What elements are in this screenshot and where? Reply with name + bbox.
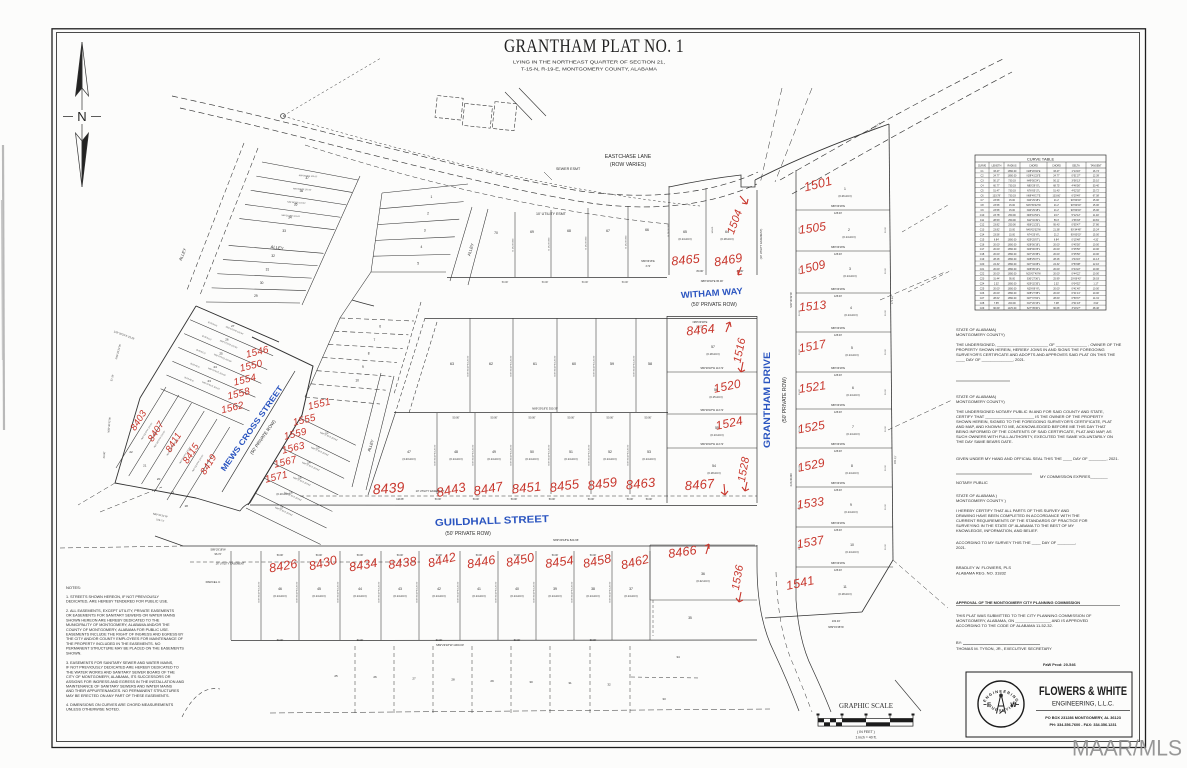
svg-text:UNLESS OTHERWISE NOTED.: UNLESS OTHERWISE NOTED. [66, 708, 120, 712]
svg-text:21.2': 21.2' [1054, 204, 1060, 207]
svg-text:50.00': 50.00' [885, 543, 887, 549]
svg-text:23: 23 [208, 379, 212, 383]
svg-text:50.00': 50.00' [549, 498, 556, 501]
svg-text:MUNICIPALITY OF MONTGOMERY, AL: MUNICIPALITY OF MONTGOMERY, ALABAMA AND/… [66, 623, 170, 627]
svg-text:RADIUS: RADIUS [1007, 165, 1016, 168]
svg-text:1650.00: 1650.00 [1008, 238, 1017, 241]
svg-text:N28°20'04"E: N28°20'04"E [1027, 170, 1041, 173]
svg-text:250.00: 250.00 [1008, 214, 1016, 217]
svg-text:N00°30'42"W: N00°30'42"W [789, 292, 793, 308]
svg-text:50.00': 50.00' [885, 267, 887, 273]
svg-text:30: 30 [529, 680, 533, 684]
svg-text:24.77': 24.77' [993, 175, 1000, 178]
svg-text:0°04'52": 0°04'52" [1071, 282, 1080, 285]
svg-text:22: 22 [129, 450, 133, 454]
svg-text:7.65': 7.65' [994, 302, 1000, 305]
svg-text:N44°29'18"L: N44°29'18"L [1027, 199, 1041, 202]
svg-text:47: 47 [407, 450, 411, 454]
svg-text:(0.14 AC±): (0.14 AC±) [525, 457, 538, 461]
svg-text:N89°29'18"E: N89°29'18"E [831, 327, 846, 330]
svg-text:59: 59 [610, 362, 614, 366]
svg-text:23.78': 23.78' [993, 214, 1000, 217]
svg-text:21.2': 21.2' [1054, 209, 1060, 212]
svg-text:10.00': 10.00' [1093, 253, 1100, 256]
svg-text:N28°25'27"L: N28°25'27"L [1027, 258, 1041, 261]
svg-text:39: 39 [553, 587, 557, 591]
svg-text:31.44': 31.44' [993, 278, 1000, 281]
svg-text:C16: C16 [980, 243, 985, 246]
svg-text:N00°30'42"W 120.00': N00°30'42"W 120.00' [594, 355, 596, 376]
svg-text:10.00': 10.00' [1093, 268, 1100, 271]
svg-text:56.3': 56.3' [1054, 219, 1060, 222]
svg-text:(0.26 AC±): (0.26 AC±) [838, 194, 851, 198]
svg-text:26: 26 [373, 675, 377, 679]
svg-text:50.00': 50.00' [645, 416, 652, 420]
svg-text:C19: C19 [980, 258, 985, 261]
svg-text:3.94': 3.94' [1093, 302, 1099, 305]
svg-text:33.47': 33.47' [993, 170, 1000, 173]
svg-text:N80°29'-5"L: N80°29'-5"L [1027, 185, 1041, 188]
svg-text:69: 69 [530, 230, 534, 234]
svg-text:16.74': 16.74' [1093, 170, 1100, 173]
svg-text:70: 70 [494, 231, 498, 235]
svg-text:N28°41'23"E: N28°41'23"E [1027, 175, 1041, 178]
svg-text:C15: C15 [980, 238, 985, 241]
svg-text:(0.14 AC±): (0.14 AC±) [603, 457, 616, 461]
svg-text:N68°49'17"E: N68°49'17"E [1027, 194, 1041, 197]
svg-text:1.17': 1.17' [1093, 282, 1099, 285]
svg-text:DELTA: DELTA [1072, 165, 1080, 168]
svg-text:S89°29'18"W 1300.00': S89°29'18"W 1300.00' [436, 643, 464, 647]
svg-text:( IN FEET ): ( IN FEET ) [857, 730, 875, 734]
svg-text:15.00: 15.00 [1009, 204, 1016, 207]
svg-text:3.72': 3.72' [645, 265, 651, 268]
svg-text:7: 7 [852, 425, 854, 429]
svg-text:4.32': 4.32' [1093, 238, 1099, 241]
svg-text:2: 2 [427, 212, 429, 216]
svg-text:1650.00: 1650.00 [1008, 263, 1017, 266]
svg-text:50.00': 50.00' [473, 498, 480, 501]
svg-text:20.00': 20.00' [1053, 268, 1060, 271]
svg-text:C17: C17 [980, 248, 985, 251]
svg-text:68.75': 68.75' [1053, 185, 1060, 188]
svg-text:CITY OF MONTGOMERY, ALABAMA, I: CITY OF MONTGOMERY, ALABAMA, ITS SUCCESS… [66, 675, 171, 679]
svg-text:20.00': 20.00' [993, 287, 1000, 290]
svg-text:C25: C25 [980, 287, 985, 290]
svg-text:32: 32 [607, 682, 611, 686]
svg-text:15.00: 15.00 [1009, 199, 1016, 202]
svg-text:(0.14 AC±): (0.14 AC±) [845, 550, 858, 554]
svg-text:BY:: BY: [956, 640, 962, 645]
svg-text:SHOWN.: SHOWN. [66, 651, 81, 655]
svg-text:36: 36 [701, 572, 705, 576]
svg-text:20.00': 20.00' [993, 268, 1000, 271]
svg-text:(0.14 AC±): (0.14 AC±) [393, 594, 406, 598]
svg-text:1650.00: 1650.00 [1008, 170, 1017, 173]
svg-text:C24: C24 [980, 282, 985, 285]
svg-text:27.86': 27.86' [1093, 224, 1100, 227]
svg-text:52: 52 [608, 450, 612, 454]
svg-text:N00°30'42"W 120.00': N00°30'42"W 120.00' [549, 444, 551, 465]
svg-text:GRANTHAM DRIVE: GRANTHAM DRIVE [762, 352, 773, 448]
svg-text:(0.14 AC±): (0.14 AC±) [843, 274, 856, 278]
svg-text:10.00': 10.00' [1093, 292, 1100, 295]
svg-text:125.00': 125.00' [834, 334, 843, 337]
svg-text:66: 66 [645, 228, 649, 232]
svg-text:25.72': 25.72' [1093, 189, 1100, 192]
svg-text:N45°30'42"W: N45°30'42"W [1026, 204, 1041, 207]
svg-text:COUNTY OF MONTGOMERY, ALABAMA: COUNTY OF MONTGOMERY, ALABAMA FOR PUBLIC… [66, 628, 169, 632]
svg-text:21.2': 21.2' [1054, 199, 1060, 202]
svg-text:MONTGOMERY COUNTY): MONTGOMERY COUNTY) [956, 332, 1005, 337]
svg-text:0°51'37": 0°51'37" [1071, 175, 1080, 178]
svg-text:50.11': 50.11' [1053, 180, 1060, 183]
svg-text:50.00': 50.00' [885, 464, 887, 470]
svg-text:24: 24 [213, 365, 217, 369]
svg-text:(0.14 AC±): (0.14 AC±) [548, 594, 561, 598]
svg-text:20.00': 20.00' [993, 243, 1000, 246]
svg-text:23.82': 23.82' [993, 229, 1000, 232]
svg-text:51.47': 51.47' [993, 189, 1000, 192]
svg-text:43: 43 [398, 587, 402, 591]
svg-text:50: 50 [530, 450, 534, 454]
svg-text:1650.00: 1650.00 [1008, 282, 1017, 285]
svg-text:28.53': 28.53' [993, 219, 1000, 222]
svg-text:20.00': 20.00' [993, 292, 1000, 295]
svg-text:28.03': 28.03' [1093, 278, 1100, 281]
svg-text:C22: C22 [980, 273, 985, 276]
svg-text:N.2N.00.00N: N.2N.00.00N [549, 237, 551, 250]
svg-text:N03°10'54"L: N03°10'54"L [1027, 214, 1041, 217]
svg-text:N00°30'42"W 120.00': N00°30'42"W 120.00' [534, 581, 536, 602]
svg-text:MONTGOMERY COUNTY ): MONTGOMERY COUNTY ) [956, 498, 1006, 503]
svg-text:1650.00: 1650.00 [1008, 243, 1017, 246]
svg-text:N89°29'18"E: N89°29'18"E [641, 260, 655, 263]
svg-text:3. EASEMENTS FOR SANITARY: 3. EASEMENTS FOR SANITARY SEWER AND WATE… [66, 661, 173, 665]
svg-text:ACCORDING TO MY SURVEY THIS TH: ACCORDING TO MY SURVEY THIS THE ____ DAY… [956, 540, 1076, 545]
svg-text:30: 30 [260, 281, 264, 285]
svg-text:50.00': 50.00' [357, 554, 364, 557]
svg-text:23.56': 23.56' [993, 204, 1000, 207]
svg-text:8: 8 [851, 464, 853, 468]
svg-text:S30°27'36"L: S30°27'36"L [1027, 278, 1041, 281]
svg-text:THOMAS M. TYSON, JR., EXECUTIV: THOMAS M. TYSON, JR., EXECUTIVE SECRETAR… [956, 646, 1052, 651]
svg-text:90°00'00": 90°00'00" [1071, 204, 1082, 207]
svg-text:54: 54 [712, 464, 716, 468]
svg-text:N74°25'-8"L: N74°25'-8"L [1027, 233, 1041, 236]
svg-text:N89°29'18"E: N89°29'18"E [831, 443, 846, 446]
svg-text:20.00': 20.00' [1053, 248, 1060, 251]
svg-text:60.77': 60.77' [993, 185, 1000, 188]
svg-text:21: 21 [143, 464, 147, 468]
svg-text:(0.14 AC±): (0.14 AC±) [353, 594, 366, 598]
svg-text:N27°37'00"L: N27°37'00"L [1027, 297, 1041, 300]
svg-text:N00°30'42"W 120.00': N00°30'42"W 120.00' [473, 444, 475, 465]
svg-text:N00°30'42"W 120.00': N00°30'42"W 120.00' [572, 581, 574, 602]
svg-text:CHORD: CHORD [1029, 165, 1038, 168]
svg-text:26: 26 [225, 338, 229, 342]
svg-text:THE DAY SAME BEARS DATE.: THE DAY SAME BEARS DATE. [956, 439, 1013, 444]
svg-text:1650.00: 1650.00 [1008, 297, 1017, 300]
svg-text:(0.14 AC±): (0.14 AC±) [564, 457, 577, 461]
svg-text:N.2N.00.00N: N.2N.00.00N [513, 238, 515, 251]
svg-text:10' UTILITY ESMT: 10' UTILITY ESMT [536, 212, 567, 216]
svg-text:21.38': 21.38' [1053, 229, 1060, 232]
svg-text:3°19'27": 3°19'27" [1071, 307, 1080, 310]
svg-text:15.00: 15.00 [1009, 209, 1016, 212]
svg-text:7: 7 [373, 338, 375, 342]
svg-text:5°12'12": 5°12'12" [1071, 214, 1080, 217]
svg-text:10.00': 10.00' [1093, 287, 1100, 290]
svg-text:F: F [987, 702, 991, 709]
svg-text:8463: 8463 [625, 474, 657, 492]
svg-text:50.00': 50.00' [542, 281, 549, 284]
svg-text:50.00': 50.00' [590, 639, 597, 642]
svg-text:(3.23 AC±): (3.23 AC±) [402, 457, 415, 461]
svg-text:58: 58 [648, 362, 652, 366]
svg-text:N89°29'18"E 95.00': N89°29'18"E 95.00' [701, 279, 724, 283]
svg-text:3: 3 [424, 228, 426, 232]
svg-text:33.47': 33.47' [1053, 170, 1060, 173]
svg-text:N27°34'28"L: N27°34'28"L [1027, 263, 1041, 266]
svg-text:27: 27 [231, 324, 235, 328]
svg-text:N17°20'15"L: N17°20'15"L [1027, 302, 1041, 305]
svg-text:24.32': 24.32' [1053, 263, 1060, 266]
svg-text:50.00': 50.00' [277, 554, 284, 557]
svg-text:46: 46 [278, 587, 282, 591]
svg-text:N.2N.00.00N: N.2N.00.00N [668, 223, 670, 236]
svg-text:34: 34 [676, 655, 680, 659]
svg-text:8464: 8464 [686, 322, 716, 339]
svg-text:APPROVAL OF THE MONTGOMERY CIT: APPROVAL OF THE MONTGOMERY CITY PLANNING… [956, 600, 1080, 605]
svg-text:48.46': 48.46' [1093, 307, 1100, 310]
svg-text:28: 28 [451, 678, 455, 682]
svg-text:90°00'00": 90°00'00" [1071, 199, 1082, 202]
svg-text:28.26': 28.26' [1053, 258, 1060, 261]
svg-text:60: 60 [572, 362, 576, 366]
svg-text:23.56': 23.56' [993, 233, 1000, 236]
svg-text:(0.14 AC±): (0.14 AC±) [844, 313, 857, 317]
svg-text:1650.00: 1650.00 [1008, 248, 1017, 251]
svg-text:37: 37 [629, 587, 633, 591]
svg-text:29: 29 [490, 679, 494, 683]
svg-text:N00°30'42"W 120.00': N00°30'42"W 120.00' [468, 355, 470, 376]
svg-text:2021.: 2021. [956, 545, 966, 550]
svg-text:SHOWN HEREON ARE HEREBY DEDICA: SHOWN HEREON ARE HEREBY DEDICATED TO THE [66, 618, 160, 622]
svg-text:N29°25'07"L: N29°25'07"L [1027, 238, 1041, 241]
svg-text:N00°30'42"W 120.00': N00°30'42"W 120.00' [496, 581, 498, 602]
svg-text:5: 5 [417, 262, 419, 266]
svg-text:CURVE: CURVE [978, 165, 987, 168]
svg-text:N27°26'38"L: N27°26'38"L [1027, 253, 1041, 256]
svg-text:S89°29'18"W: S89°29'18"W [210, 548, 226, 552]
svg-text:MAAR/MLS: MAAR/MLS [1072, 736, 1182, 761]
svg-text:N00°30'42"W 120.00': N00°30'42"W 120.00' [555, 355, 557, 376]
svg-text:0°44'22": 0°44'22" [1071, 268, 1080, 271]
svg-text:AND THEIR APPURTENANCES. NO P: AND THEIR APPURTENANCES. NO PERMANENT ST… [66, 689, 180, 693]
svg-text:(0.22 AC±): (0.22 AC±) [696, 579, 709, 583]
svg-text:30.00': 30.00' [102, 451, 107, 459]
svg-text:50.00': 50.00' [277, 639, 284, 642]
svg-text:GRAPHIC SCALE: GRAPHIC SCALE [839, 703, 893, 710]
svg-text:N: N [77, 109, 86, 124]
svg-text:8: 8 [368, 351, 370, 355]
svg-text:C27: C27 [980, 297, 985, 300]
svg-text:(0.14 AC±): (0.14 AC±) [449, 457, 462, 461]
svg-text:(0.18 AC±): (0.18 AC±) [720, 237, 733, 241]
svg-text:MONTGOMERY COUNTY): MONTGOMERY COUNTY) [956, 399, 1005, 404]
svg-text:125.00': 125.00' [834, 411, 843, 414]
svg-text:38: 38 [591, 587, 595, 591]
svg-text:DEDICATED, ARE HEREBY TENDERED: DEDICATED, ARE HEREBY TENDERED FOR PUBLI… [66, 600, 168, 604]
svg-text:N49°50'24"L: N49°50'24"L [1027, 180, 1041, 183]
svg-text:125.00': 125.00' [834, 212, 843, 215]
svg-text:50.00': 50.00' [885, 348, 887, 354]
svg-text:C29: C29 [980, 307, 985, 310]
svg-text:200.00: 200.00 [1008, 302, 1016, 305]
svg-text:95.00: 95.00 [1009, 278, 1016, 281]
svg-text:50.00': 50.00' [885, 309, 887, 315]
svg-text:65: 65 [683, 230, 687, 234]
svg-text:33: 33 [282, 229, 286, 233]
svg-text:ENGINEERING, L.L.C.: ENGINEERING, L.L.C. [1052, 702, 1114, 708]
svg-text:50.00': 50.00' [436, 639, 443, 642]
svg-text:8451: 8451 [511, 479, 542, 497]
svg-text:6.84': 6.84' [994, 238, 1000, 241]
svg-text:NOTES:: NOTES: [66, 585, 81, 590]
svg-text:182.13': 182.13' [893, 455, 898, 464]
svg-text:N00°30'42"W 120.00': N00°30'42"W 120.00' [379, 581, 381, 602]
svg-text:179.84': 179.84' [890, 295, 895, 304]
svg-text:50.17': 50.17' [993, 180, 1000, 183]
svg-text:23.56': 23.56' [993, 199, 1000, 202]
svg-text:21.2': 21.2' [1054, 233, 1060, 236]
svg-text:N44°29'18"L: N44°29'18"L [1027, 209, 1041, 212]
svg-text:1513: 1513 [798, 298, 827, 315]
svg-text:N28°56'18"L: N28°56'18"L [1027, 243, 1041, 246]
svg-text:TANGENT: TANGENT [1090, 165, 1102, 168]
svg-text:67: 67 [606, 229, 610, 233]
svg-text:6°29'49": 6°29'49" [1071, 194, 1080, 197]
svg-text:1650.00: 1650.00 [1008, 268, 1017, 271]
svg-text:19: 19 [171, 491, 175, 495]
svg-text:50.00': 50.00' [529, 416, 536, 420]
svg-text:3,2N,00,000: 3,2N,00,000 [790, 473, 793, 487]
svg-text:N11°31'49"L: N11°31'49"L [1027, 219, 1041, 222]
svg-text:N00°30'42"W 120.00': N00°30'42"W 120.00' [610, 581, 612, 602]
svg-text:1. STREETS SHOWN HEREON,: 1. STREETS SHOWN HEREON, IF NOT PREVIOUS… [66, 595, 159, 599]
svg-text:3: 3 [849, 267, 851, 271]
svg-text:(0.14 AC±): (0.14 AC±) [624, 594, 637, 598]
svg-text:28.26': 28.26' [993, 258, 1000, 261]
svg-text:(0.18 AC±): (0.18 AC±) [838, 592, 851, 596]
svg-text:4. DIMENSIONS ON CURVES A: 4. DIMENSIONS ON CURVES ARE CHORD MEASUR… [66, 703, 174, 707]
svg-text:8465: 8465 [671, 252, 701, 269]
svg-text:50.00': 50.00' [627, 498, 634, 501]
svg-text:20.00': 20.00' [993, 248, 1000, 251]
svg-text:125.00': 125.00' [834, 529, 843, 532]
svg-text:2.32': 2.32' [994, 282, 1000, 285]
svg-text:10.00': 10.00' [1093, 273, 1100, 276]
svg-text:0°59'37": 0°59'37" [1071, 297, 1080, 300]
svg-text:29: 29 [254, 294, 258, 298]
svg-text:IF NOT PREVIOUSLY DEDICATED AR: IF NOT PREVIOUSLY DEDICATED ARE HEREBY D… [66, 666, 179, 670]
svg-text:C13: C13 [980, 229, 985, 232]
svg-text:23.7': 23.7' [1054, 214, 1060, 217]
svg-text:EASEMENTS INCLUDE THE RIGHT OF: EASEMENTS INCLUDE THE RIGHT OF INGRESS A… [66, 633, 184, 637]
svg-text:2°01'43": 2°01'43" [1071, 302, 1080, 305]
svg-text:N00°30'42"W 120.00': N00°30'42"W 120.00' [259, 581, 261, 602]
svg-text:1°04'16": 1°04'16" [1071, 258, 1080, 261]
svg-text:20.00': 20.00' [1053, 292, 1060, 295]
svg-text:16' UTILITY EASEMENT: 16' UTILITY EASEMENT [216, 562, 245, 566]
svg-text:20.00': 20.00' [1053, 243, 1060, 246]
svg-text:67.08': 67.08' [1093, 194, 1100, 197]
svg-text:4°46'56": 4°46'56" [1071, 185, 1080, 188]
svg-text:(0.14 AC±): (0.14 AC±) [846, 432, 859, 436]
svg-text:32: 32 [271, 254, 275, 258]
svg-text:2.32': 2.32' [1054, 282, 1060, 285]
svg-text:(0.14 AC±): (0.14 AC±) [846, 393, 859, 397]
svg-text:W: W [1010, 702, 1017, 709]
svg-text:62: 62 [489, 362, 493, 366]
svg-text:(0.14 AC±): (0.14 AC±) [642, 457, 655, 461]
svg-text:(0.14 AC±): (0.14 AC±) [586, 594, 599, 598]
svg-text:25: 25 [219, 351, 223, 355]
svg-text:(0.14 AC±): (0.14 AC±) [845, 353, 858, 357]
svg-text:N00°30'42"W 120.00': N00°30'42"W 120.00' [417, 581, 419, 602]
svg-text:90°34'48": 90°34'48" [1071, 229, 1082, 232]
svg-text:250.00: 250.00 [1008, 224, 1016, 227]
svg-text:25: 25 [334, 674, 338, 678]
svg-text:50.00': 50.00' [582, 281, 589, 284]
svg-text:42: 42 [437, 587, 441, 591]
svg-text:50.00': 50.00' [514, 639, 521, 642]
svg-text:S89°29'18"W 113.72': S89°29'18"W 113.72' [700, 443, 724, 446]
svg-text:MY COMMISSION EXPIRES________: MY COMMISSION EXPIRES________ [1040, 474, 1108, 479]
svg-text:1650.00: 1650.00 [1008, 175, 1017, 178]
svg-text:20.81': 20.81' [1093, 219, 1100, 222]
svg-text:PARCEL C: PARCEL C [206, 580, 222, 584]
svg-text:15.00': 15.00' [1093, 233, 1100, 236]
svg-text:12.39': 12.39' [1093, 175, 1100, 178]
svg-text:96.69': 96.69' [993, 307, 1000, 310]
svg-text:0°44'22": 0°44'22" [1071, 273, 1080, 276]
svg-text:0°45'50": 0°45'50" [1071, 243, 1080, 246]
svg-text:23.56': 23.56' [993, 209, 1000, 212]
svg-text:(0.14 AC±): (0.14 AC±) [845, 471, 858, 475]
svg-text:10.00': 10.00' [1093, 248, 1100, 251]
svg-text:133.78': 133.78' [993, 194, 1001, 197]
svg-text:6: 6 [852, 386, 854, 390]
svg-text:0°41'41": 0°41'41" [1071, 292, 1080, 295]
svg-text:50.00': 50.00' [622, 281, 629, 284]
svg-text:730.33: 730.33 [1008, 185, 1016, 188]
svg-text:48: 48 [454, 450, 458, 454]
svg-text:31: 31 [266, 267, 270, 271]
svg-text:NOTARY PUBLIC: NOTARY PUBLIC [956, 480, 988, 485]
svg-text:1°14'16": 1°14'16" [1071, 170, 1080, 173]
svg-text:44: 44 [358, 587, 362, 591]
svg-text:N29°09'-9"L: N29°09'-9"L [1027, 287, 1041, 290]
svg-text:6: 6 [379, 324, 381, 328]
svg-text:(0.18 AC±): (0.18 AC±) [707, 471, 720, 475]
svg-text:N56°21'25"L: N56°21'25"L [1027, 224, 1041, 227]
svg-text:N00°30'42"W 120.00': N00°30'42"W 120.00' [628, 444, 630, 465]
svg-text:2. ALL EASEMENTS, EXCEPT: 2. ALL EASEMENTS, EXCEPT UTILITY, PRIVAT… [66, 609, 174, 613]
svg-text:20.00': 20.00' [1053, 287, 1060, 290]
svg-text:8467: 8467 [684, 476, 715, 494]
